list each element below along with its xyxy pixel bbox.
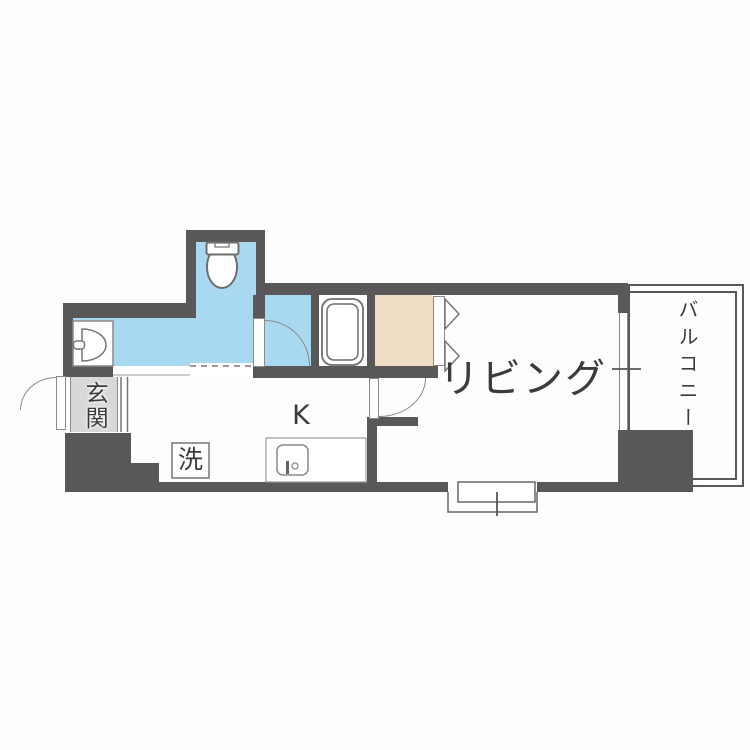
- toilet-icon: [207, 243, 239, 289]
- bathtub-icon: [322, 299, 363, 365]
- living-label: リビング: [420, 358, 626, 400]
- bottom-window-symbol: [448, 482, 537, 516]
- entrance-label: 玄関: [82, 381, 106, 433]
- kitchen-label: K: [285, 402, 317, 430]
- balcony-label: バルコニー: [676, 299, 697, 444]
- kitchen-sink-icon: [266, 438, 366, 482]
- floorplan-canvas: 玄関 洗 K リビング バルコニー: [0, 0, 750, 750]
- washbasin-icon: [73, 321, 113, 366]
- washer-label: 洗: [172, 447, 209, 473]
- fixtures-overlay: [0, 0, 750, 750]
